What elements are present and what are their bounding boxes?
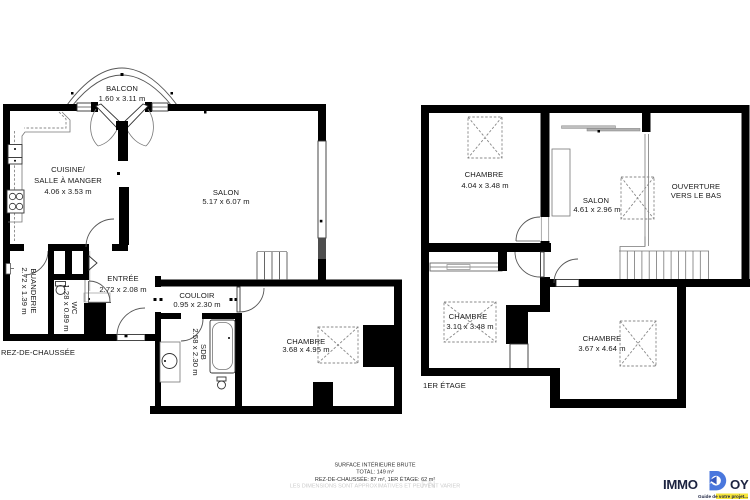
- svg-text:OY: OY: [730, 477, 749, 492]
- svg-text:LES DIMENSIONS SONT APPROXIMAT: LES DIMENSIONS SONT APPROXIMATIVES ET PE…: [290, 484, 460, 490]
- svg-text:REZ-DE-CHAUSSÉE: 87 m², 1ER ÉT: REZ-DE-CHAUSSÉE: 87 m², 1ER ÉTAGE: 62 m²: [315, 476, 435, 483]
- svg-text:SALON: SALON: [213, 188, 239, 197]
- svg-text:OUVERTURE: OUVERTURE: [672, 182, 720, 191]
- svg-text:CHAMBRE: CHAMBRE: [583, 334, 622, 343]
- svg-text:4.06 x 3.53 m: 4.06 x 3.53 m: [44, 187, 91, 196]
- svg-text:BUANDERIE2.72 x 1.39 m: BUANDERIE2.72 x 1.39 m: [20, 267, 38, 314]
- svg-text:1.60 x 3.11 m: 1.60 x 3.11 m: [99, 94, 146, 103]
- svg-text:3.10 x 3.48 m: 3.10 x 3.48 m: [446, 322, 493, 331]
- svg-text:3.67 x 4.64 m: 3.67 x 4.64 m: [578, 344, 625, 353]
- svg-text:REZ-DE-CHAUSSÉE: REZ-DE-CHAUSSÉE: [1, 348, 75, 357]
- svg-text:SALON: SALON: [583, 196, 609, 205]
- svg-text:VERS LE BAS: VERS LE BAS: [671, 191, 721, 200]
- svg-text:COULOIR: COULOIR: [179, 291, 215, 300]
- svg-text:SURFACE INTÉRIEURE BRUTE: SURFACE INTÉRIEURE BRUTE: [335, 462, 416, 469]
- svg-text:TOTAL: 149 m²: TOTAL: 149 m²: [356, 470, 394, 476]
- svg-text:SALLE À MANGER: SALLE À MANGER: [34, 176, 102, 185]
- svg-text:4.04 x 3.48 m: 4.04 x 3.48 m: [461, 181, 508, 190]
- svg-text:CUISINE/: CUISINE/: [51, 165, 86, 174]
- svg-text:0.95 x 2.30 m: 0.95 x 2.30 m: [173, 300, 220, 309]
- svg-text:IMMO: IMMO: [663, 477, 698, 492]
- svg-text:4.61 x 2.96 m: 4.61 x 2.96 m: [573, 205, 620, 214]
- svg-text:3.68 x 4.95 m: 3.68 x 4.95 m: [282, 345, 329, 354]
- svg-text:ENTRÉE: ENTRÉE: [107, 274, 138, 283]
- svg-text:1ER ÉTAGE: 1ER ÉTAGE: [423, 381, 466, 390]
- svg-text:5.17 x 6.07 m: 5.17 x 6.07 m: [202, 197, 249, 206]
- svg-text:CHAMBRE: CHAMBRE: [465, 170, 504, 179]
- svg-text:Guide de votre projet...: Guide de votre projet...: [698, 494, 748, 499]
- svg-text:BALCON: BALCON: [106, 84, 138, 93]
